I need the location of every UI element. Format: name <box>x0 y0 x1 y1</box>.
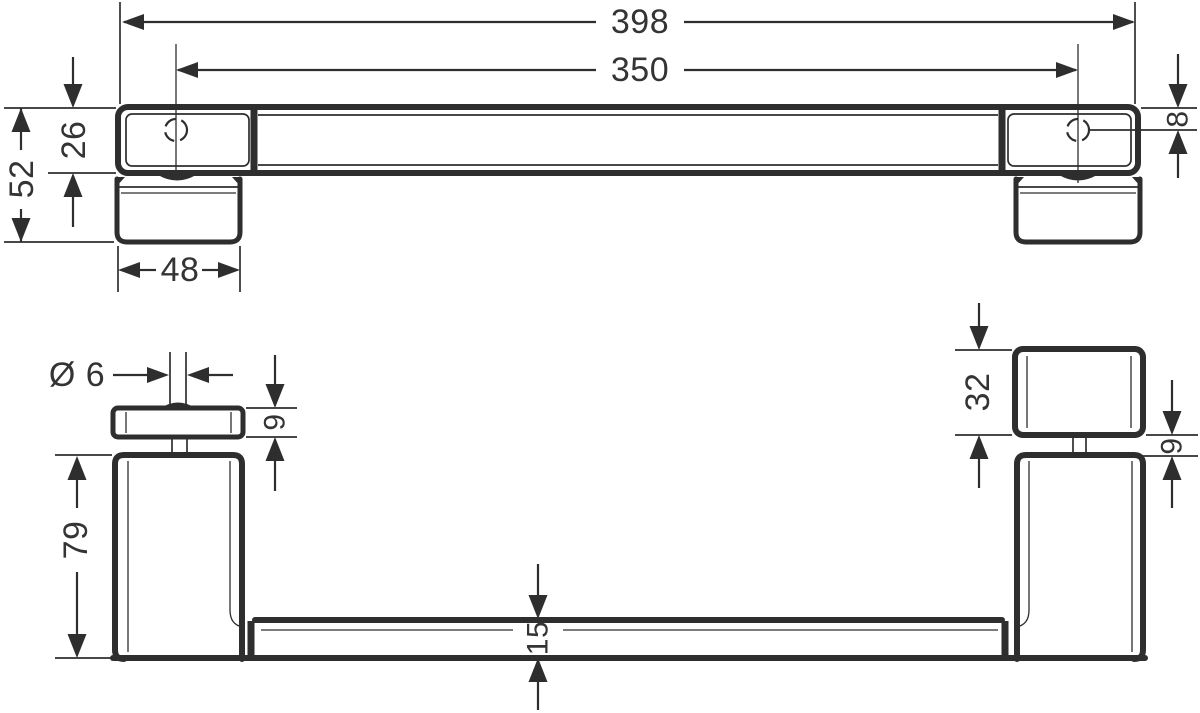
dim-label-post-height: 79 <box>57 521 95 560</box>
bottom-rail <box>113 620 1145 658</box>
dim-plate-width: 48 <box>118 246 240 292</box>
product-dimension-drawing: 398 350 52 26 48 <box>0 0 1200 713</box>
dim-label-block-height: 32 <box>959 373 997 412</box>
dim-pin-diameter: Ø 6 <box>49 356 233 394</box>
top-view <box>116 107 1197 242</box>
dim-label-plate-thickness-right: 9 <box>1156 437 1189 454</box>
right-mounting-plate <box>1015 175 1141 242</box>
left-clamp-plate <box>113 408 243 437</box>
dim-label-bar-depth: 26 <box>55 121 93 160</box>
right-post <box>1017 455 1143 659</box>
dim-plate-thickness-left: 9 <box>246 355 297 491</box>
dim-label-overall-length: 398 <box>611 3 669 41</box>
left-plate-screw-tab <box>158 175 196 181</box>
drawing-canvas: 398 350 52 26 48 <box>0 0 1200 713</box>
dim-label-overall-depth: 52 <box>3 160 41 199</box>
dim-label-edge-to-hole: 8 <box>1162 110 1195 127</box>
dim-label-pin-diameter: Ø 6 <box>49 356 105 394</box>
dim-rail-thickness: 15 <box>522 564 555 710</box>
dim-edge-to-hole: 8 <box>1141 54 1197 178</box>
handle-bar-outline <box>118 107 1138 173</box>
dim-label-mounting-distance: 350 <box>611 51 669 89</box>
left-mounting-plate <box>116 175 241 242</box>
right-bracket <box>1015 349 1143 659</box>
dim-bar-depth: 26 <box>48 57 116 227</box>
dim-block-height: 32 <box>955 303 1012 488</box>
right-grip-block <box>1015 349 1143 435</box>
dim-label-plate-width: 48 <box>161 251 200 289</box>
left-bracket <box>113 352 243 659</box>
dim-label-plate-thickness-left: 9 <box>259 413 292 430</box>
dim-post-height: 79 <box>55 455 112 658</box>
left-post <box>115 455 242 659</box>
dim-label-rail-thickness: 15 <box>522 621 555 655</box>
